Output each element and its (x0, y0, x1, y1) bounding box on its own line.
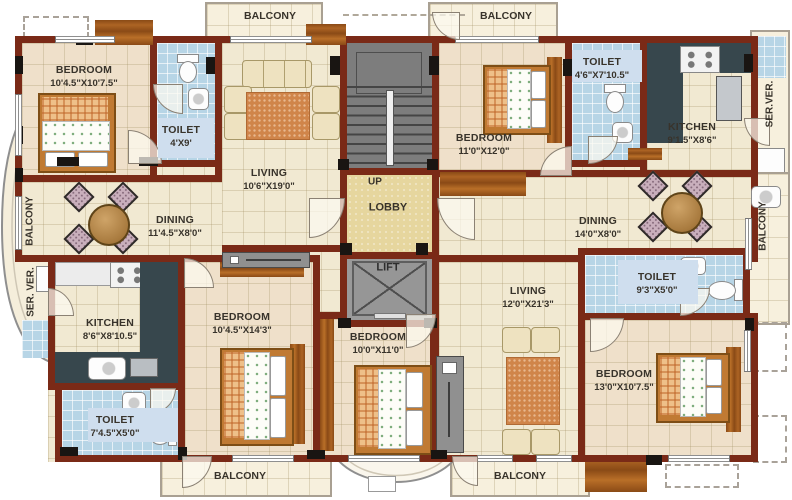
column (744, 54, 753, 72)
counter (55, 262, 113, 286)
rug (246, 92, 310, 140)
column (57, 157, 79, 166)
ledge-dashed-right-2 (753, 415, 787, 463)
label-balcony-top-left: BALCONY (244, 10, 296, 24)
label-toilet-bottom-left: TOILET7'4.5"X5'0" (91, 414, 140, 440)
column (340, 243, 352, 255)
label-lift: LIFT (376, 261, 399, 276)
sofa-single (531, 429, 560, 455)
window (232, 455, 294, 462)
window (536, 455, 572, 462)
column (15, 168, 23, 182)
lift-door (374, 313, 406, 319)
window (477, 455, 513, 462)
column (15, 56, 23, 74)
label-toilet-right: TOILET9'3"X5'0" (637, 271, 678, 297)
sofa-single (502, 327, 531, 353)
label-bedroom-bottom-right: BEDROOM13'0"X10'7.5" (594, 368, 654, 394)
wood-lintel (306, 24, 346, 45)
ledge-dashed-bottom (665, 464, 739, 488)
window (55, 36, 115, 43)
column (416, 243, 428, 255)
label-dining-left: DINING11'4.5"X8'0" (148, 214, 202, 240)
window (15, 196, 22, 250)
bed (220, 348, 294, 446)
counter-dark (140, 262, 178, 362)
window (744, 330, 751, 372)
wc-icon (606, 91, 624, 113)
bay-step (368, 476, 396, 492)
label-kitchen-right: KITCHEN9'1.5"X8'6" (668, 121, 717, 147)
label-lobby: LOBBY (369, 201, 408, 216)
window (348, 455, 420, 462)
label-serv-right: SER.VER. (763, 81, 776, 128)
column (307, 450, 325, 459)
label-balcony-bottom-right: BALCONY (494, 470, 546, 484)
sofa-single (312, 113, 340, 140)
label-balcony-right: BALCONY (756, 201, 769, 250)
dining-table (661, 192, 703, 234)
column (330, 56, 340, 75)
tv-unit-detail (442, 362, 457, 374)
label-dining-right: DINING14'0"X8'0" (575, 215, 621, 241)
window (230, 36, 312, 43)
bed (483, 65, 551, 135)
wood-lintel (628, 148, 662, 160)
serv-right-blue-floor (754, 36, 786, 78)
column (646, 455, 662, 465)
sink-icon (88, 357, 126, 380)
column (429, 56, 439, 75)
appliance-icon (130, 358, 158, 377)
bed (656, 353, 730, 423)
stair-divider (386, 90, 394, 166)
label-balcony-top-right: BALCONY (480, 10, 532, 24)
tv-console-detail (246, 259, 301, 261)
washbasin-icon (188, 88, 209, 110)
bed (354, 365, 432, 455)
label-bedroom-bottom-left: BEDROOM10'4.5"X14'3" (212, 311, 272, 337)
column (431, 450, 447, 459)
column (206, 57, 215, 74)
sofa-three-seat (242, 60, 312, 88)
tv-unit-detail (448, 382, 450, 437)
label-bedroom-top-right: BEDROOM11'0"X12'0" (456, 132, 512, 158)
window (455, 36, 539, 43)
column (60, 447, 78, 456)
label-kitchen-left: KITCHEN8'6"X8'10.5" (83, 317, 137, 343)
dining-table (88, 204, 130, 246)
wardrobe (320, 319, 334, 451)
sofa-single (312, 86, 340, 113)
column (427, 159, 438, 170)
tv-console-detail (230, 256, 239, 264)
fridge-icon (716, 76, 742, 121)
label-living-left: LIVING10'6"X19'0" (243, 167, 295, 193)
label-balcony-left: BALCONY (23, 196, 36, 245)
sofa-single (531, 327, 560, 353)
wardrobe (440, 172, 526, 196)
stove-icon (680, 46, 720, 73)
column (338, 159, 349, 170)
wc-icon (179, 61, 197, 83)
floor-plan: BEDROOM10'4.5"X10'7.5" TOILET4'X9' LIVIN… (0, 0, 792, 500)
label-toilet-top-right: TOILET4'6"X7'10.5" (575, 56, 629, 82)
label-bedroom-bottom-center: BEDROOM10'0"X11'0" (350, 331, 406, 357)
label-living-right: LIVING12'0"X21'3" (502, 285, 554, 311)
column (338, 318, 351, 328)
wc-icon (708, 281, 736, 300)
window (745, 218, 752, 270)
rug (506, 357, 560, 425)
ledge-dashed-right-1 (753, 322, 787, 372)
window (668, 455, 730, 462)
label-toilet-top-left: TOILET4'X9' (162, 124, 200, 150)
label-serv-left: SER. VER. (24, 267, 37, 316)
label-bedroom-top-left: BEDROOM10'4.5"X10'7.5" (50, 64, 117, 90)
window (15, 94, 22, 156)
label-balcony-bottom-left: BALCONY (214, 470, 266, 484)
label-up: UP (368, 175, 382, 188)
sofa-single (502, 429, 531, 455)
